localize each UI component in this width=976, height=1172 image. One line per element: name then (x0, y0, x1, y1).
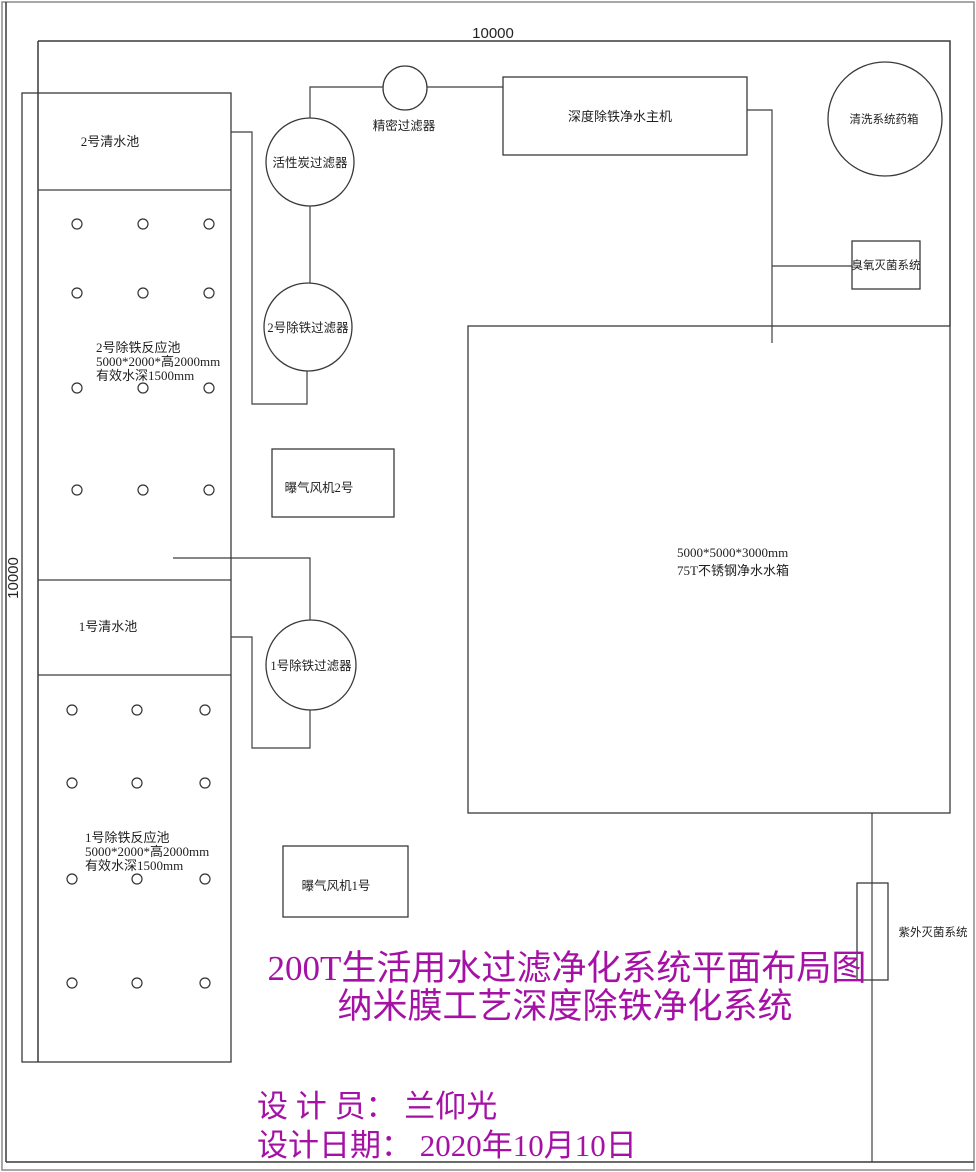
pool-block: 2号清水池 2号除铁反应池 5000*2000*高2000mm 有效水深1500… (22, 93, 231, 1062)
drain-hole (132, 978, 142, 988)
drain-hole (132, 778, 142, 788)
drain-hole (138, 219, 148, 229)
storage-tank-size: 5000*5000*3000mm (677, 545, 788, 560)
pool2-reaction-depth: 有效水深1500mm (96, 368, 194, 383)
drain-hole (200, 778, 210, 788)
ozone-label: 臭氧灭菌系统 (852, 258, 921, 272)
precision-filter-circle (383, 66, 427, 110)
iron-filter-1-label: 1号除铁过滤器 (270, 658, 352, 673)
drain-hole (67, 705, 77, 715)
dimension-top: 10000 (472, 25, 514, 42)
drawing-title: 200T生活用水过滤净化系统平面布局图 纳米膜工艺深度除铁净化系统 (268, 949, 867, 1026)
floor-plan-page: 10000 10000 2号清水池 2号除铁反应池 5000*2000*高200… (0, 0, 976, 1172)
iron-filter-2-label: 2号除铁过滤器 (267, 320, 349, 335)
carbon-filter-label: 活性炭过滤器 (272, 156, 348, 170)
drain-hole (200, 705, 210, 715)
mainunit-to-tank-pipe (747, 110, 772, 343)
drain-hole (132, 705, 142, 715)
drain-hole (72, 485, 82, 495)
drain-hole (72, 219, 82, 229)
pool2-reaction-name: 2号除铁反应池 (96, 340, 181, 355)
fan1-label: 曝气风机1号 (302, 878, 371, 893)
main-unit-label: 深度除铁净水主机 (568, 109, 672, 124)
drain-hole (67, 978, 77, 988)
dimension-left: 10000 (5, 557, 22, 599)
drain-hole (138, 288, 148, 298)
fan2-label: 曝气风机2号 (285, 480, 354, 495)
pool2-reaction-size: 5000*2000*高2000mm (96, 354, 220, 369)
drain-hole (204, 288, 214, 298)
uv-label: 紫外灭菌系统 (899, 926, 968, 939)
boundary-top-right-wall (38, 41, 950, 326)
pool1-clear-label: 1号清水池 (79, 619, 138, 634)
drain-hole (200, 874, 210, 884)
drain-hole (204, 383, 214, 393)
pool2-clear-label: 2号清水池 (81, 134, 140, 149)
drain-hole (72, 288, 82, 298)
filters: 活性炭过滤器 2号除铁过滤器 精密过滤器 1号除铁过滤器 (264, 66, 436, 710)
drain-hole (67, 778, 77, 788)
pool1-to-filter-pipe (173, 558, 310, 620)
drain-hole (138, 383, 148, 393)
drain-hole (200, 978, 210, 988)
drain-hole (72, 383, 82, 393)
pool1-reaction-size: 5000*2000*高2000mm (85, 844, 209, 859)
title-line1: 200T生活用水过滤净化系统平面布局图 (268, 949, 867, 988)
pool1-reaction-name: 1号除铁反应池 (85, 830, 170, 845)
title-block: 设 计 员： 兰仰光 设计日期： 2020年10月10日 (257, 1089, 637, 1163)
floor-plan-drawing: 10000 10000 2号清水池 2号除铁反应池 5000*2000*高200… (0, 0, 976, 1172)
drain-hole (132, 874, 142, 884)
pool1-reaction-depth: 有效水深1500mm (85, 858, 183, 873)
date-line: 设计日期： 2020年10月10日 (257, 1128, 637, 1163)
designer-line: 设 计 员： 兰仰光 (257, 1089, 497, 1124)
storage-tank-name: 75T不锈钢净水水箱 (677, 563, 789, 578)
drain-hole (204, 485, 214, 495)
drain-hole (204, 219, 214, 229)
chem-tank-label: 清洗系统药箱 (850, 112, 919, 126)
title-line2: 纳米膜工艺深度除铁净化系统 (337, 987, 792, 1026)
precision-filter-label: 精密过滤器 (373, 118, 436, 133)
pool-block-outline (22, 93, 231, 1062)
drain-hole (67, 874, 77, 884)
drain-hole (138, 485, 148, 495)
